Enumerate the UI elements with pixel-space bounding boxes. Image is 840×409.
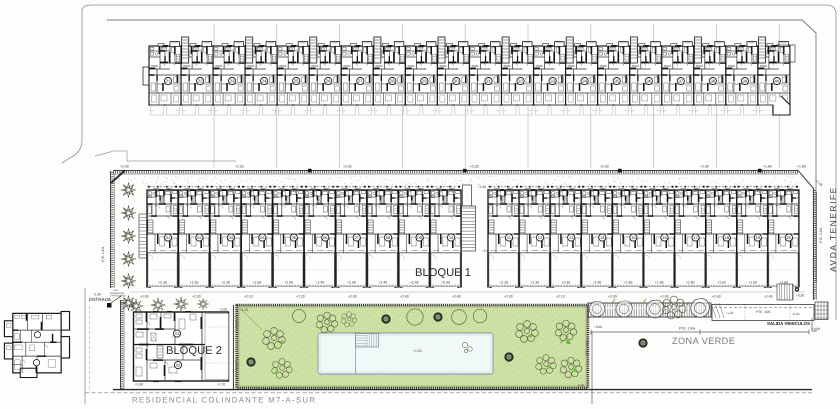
- svg-text:+2.40: +2.40: [379, 281, 388, 285]
- svg-text:19: 19: [756, 235, 761, 240]
- svg-text:+2.40: +2.40: [478, 185, 486, 189]
- svg-text:+2.10: +2.10: [556, 295, 565, 299]
- svg-text:AVDA TENERIFE: AVDA TENERIFE: [828, 186, 838, 272]
- svg-text:21: 21: [166, 79, 171, 84]
- svg-text:RESIDENCIAL COLINDANTE M7-A-: RESIDENCIAL COLINDANTE M7-A-SUR: [132, 396, 316, 405]
- svg-text:25: 25: [294, 79, 299, 84]
- svg-text:PTE. 4.4%: PTE. 4.4%: [585, 341, 589, 356]
- svg-text:29: 29: [422, 79, 427, 84]
- svg-text:40: 40: [775, 79, 780, 84]
- svg-text:02: 02: [197, 235, 202, 240]
- svg-text:PTE. 5.2%: PTE. 5.2%: [819, 228, 823, 243]
- svg-text:+2.30: +2.30: [158, 281, 167, 285]
- svg-text:05: 05: [292, 235, 297, 240]
- svg-text:17: 17: [693, 235, 698, 240]
- svg-text:PTE. 16%: PTE. 16%: [756, 310, 771, 314]
- svg-text:+1.80: +1.80: [413, 349, 422, 353]
- svg-text:+2.30: +2.30: [562, 281, 571, 285]
- svg-text:-0.20: -0.20: [792, 312, 800, 316]
- svg-text:+1.80: +1.80: [655, 281, 664, 285]
- svg-text:+2.30: +2.30: [504, 295, 513, 299]
- svg-text:15: 15: [631, 235, 636, 240]
- svg-text:+2.05: +2.05: [219, 308, 227, 312]
- svg-text:33: 33: [550, 79, 555, 84]
- svg-text:02: 02: [176, 363, 181, 368]
- svg-text:08: 08: [386, 235, 391, 240]
- svg-text:+2.20: +2.20: [296, 295, 305, 299]
- svg-text:Y PERSONAS: Y PERSONAS: [110, 294, 126, 297]
- svg-text:SALIDA VEHICULOS: SALIDA VEHICULOS: [767, 321, 810, 326]
- svg-text:27: 27: [358, 79, 363, 84]
- svg-text:PTE. 1.9%: PTE. 1.9%: [679, 327, 695, 331]
- svg-text:30: 30: [454, 79, 459, 84]
- svg-text:+1.80: +1.80: [593, 281, 602, 285]
- svg-text:+2.00: +2.00: [608, 295, 617, 299]
- svg-text:+2.30: +2.30: [531, 281, 540, 285]
- svg-text:BLOQUE 2: BLOQUE 2: [166, 345, 222, 357]
- svg-text:+1.80: +1.80: [135, 383, 143, 387]
- svg-text:18: 18: [724, 235, 729, 240]
- svg-text:06: 06: [323, 235, 328, 240]
- svg-text:+2.30: +2.30: [600, 165, 609, 169]
- svg-text:+1.80: +1.80: [624, 281, 633, 285]
- svg-text:+2.35: +2.35: [343, 165, 352, 169]
- svg-text:16: 16: [662, 235, 667, 240]
- svg-text:07: 07: [354, 235, 359, 240]
- svg-text:+2.35: +2.35: [235, 165, 244, 169]
- svg-text:+1.60: +1.60: [748, 281, 757, 285]
- svg-text:+1.80: +1.80: [686, 281, 695, 285]
- svg-text:26: 26: [326, 79, 331, 84]
- svg-text:+1.60: +1.60: [712, 295, 721, 299]
- svg-text:+0.00: +0.00: [812, 327, 820, 331]
- svg-text:04: 04: [260, 235, 265, 240]
- svg-text:BLOQUE 1: BLOQUE 1: [415, 267, 471, 279]
- svg-text:+1.80: +1.80: [763, 165, 772, 169]
- svg-text:-1.20: -1.20: [726, 311, 734, 315]
- svg-text:+2.10: +2.10: [244, 295, 253, 299]
- svg-text:32: 32: [518, 79, 523, 84]
- svg-text:38: 38: [710, 79, 715, 84]
- svg-text:+1.70: +1.70: [217, 383, 225, 387]
- svg-text:+2.30: +2.30: [700, 165, 709, 169]
- svg-text:ENTRADA: ENTRADA: [89, 297, 112, 302]
- svg-text:22: 22: [198, 79, 203, 84]
- svg-text:+2.40: +2.40: [410, 281, 419, 285]
- svg-text:+2.40: +2.40: [452, 295, 461, 299]
- svg-text:+2.30: +2.30: [470, 165, 479, 169]
- svg-text:24: 24: [262, 79, 267, 84]
- svg-text:ZONA VERDE: ZONA VERDE: [672, 336, 735, 346]
- svg-text:37: 37: [678, 79, 683, 84]
- svg-text:-0.30: -0.30: [577, 384, 584, 388]
- svg-text:+1.90: +1.90: [660, 295, 669, 299]
- svg-text:34: 34: [582, 79, 587, 84]
- svg-text:13: 13: [569, 235, 574, 240]
- svg-text:+1.45: +1.45: [764, 295, 773, 299]
- svg-text:+1.00: +1.00: [140, 295, 149, 299]
- svg-text:+2.30: +2.30: [253, 281, 262, 285]
- svg-text:+2.40: +2.40: [400, 295, 409, 299]
- svg-text:01: 01: [166, 235, 171, 240]
- svg-text:+2.30: +2.30: [348, 295, 357, 299]
- svg-text:35: 35: [614, 79, 619, 84]
- svg-text:+1.80: +1.80: [797, 165, 806, 169]
- svg-text:31: 31: [486, 79, 491, 84]
- svg-text:01: 01: [175, 331, 180, 336]
- svg-text:14: 14: [600, 235, 605, 240]
- svg-text:36: 36: [646, 79, 651, 84]
- svg-text:+1.70: +1.70: [240, 308, 248, 312]
- svg-text:+2.40: +2.40: [316, 281, 325, 285]
- svg-text:+2.40: +2.40: [441, 281, 450, 285]
- svg-text:10: 10: [449, 235, 454, 240]
- svg-text:+0.90: +0.90: [594, 325, 602, 329]
- svg-text:PTE. 2.1%: PTE. 2.1%: [101, 247, 105, 262]
- svg-text:09: 09: [417, 235, 422, 240]
- svg-text:+1.60: +1.60: [717, 281, 726, 285]
- svg-text:+2.40: +2.40: [347, 281, 356, 285]
- svg-text:28: 28: [390, 79, 395, 84]
- svg-text:+2.00: +2.00: [192, 295, 201, 299]
- svg-text:+1.80: +1.80: [93, 293, 101, 297]
- svg-text:20: 20: [787, 235, 792, 240]
- svg-text:39: 39: [743, 79, 748, 84]
- svg-text:+2.40: +2.40: [284, 281, 293, 285]
- svg-text:+2.30: +2.30: [120, 165, 129, 169]
- svg-text:23: 23: [230, 79, 235, 84]
- svg-text:+2.30: +2.30: [190, 281, 199, 285]
- svg-text:03: 03: [229, 235, 234, 240]
- svg-text:+2.30: +2.30: [499, 281, 508, 285]
- svg-text:+0.30: +0.30: [796, 294, 804, 298]
- svg-text:+2.30: +2.30: [221, 281, 230, 285]
- svg-text:12: 12: [538, 235, 543, 240]
